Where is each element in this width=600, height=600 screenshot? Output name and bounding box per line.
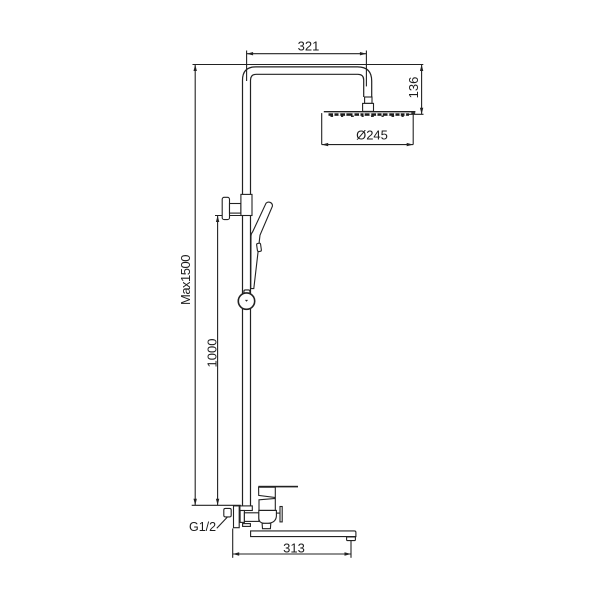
svg-text:Max1500: Max1500 bbox=[178, 255, 193, 305]
svg-text:G1/2: G1/2 bbox=[189, 520, 216, 534]
svg-text:136: 136 bbox=[406, 77, 421, 99]
svg-text:1000: 1000 bbox=[205, 339, 220, 368]
svg-text:Ø245: Ø245 bbox=[356, 127, 388, 142]
svg-text:321: 321 bbox=[298, 39, 320, 54]
svg-text:313: 313 bbox=[283, 540, 305, 555]
